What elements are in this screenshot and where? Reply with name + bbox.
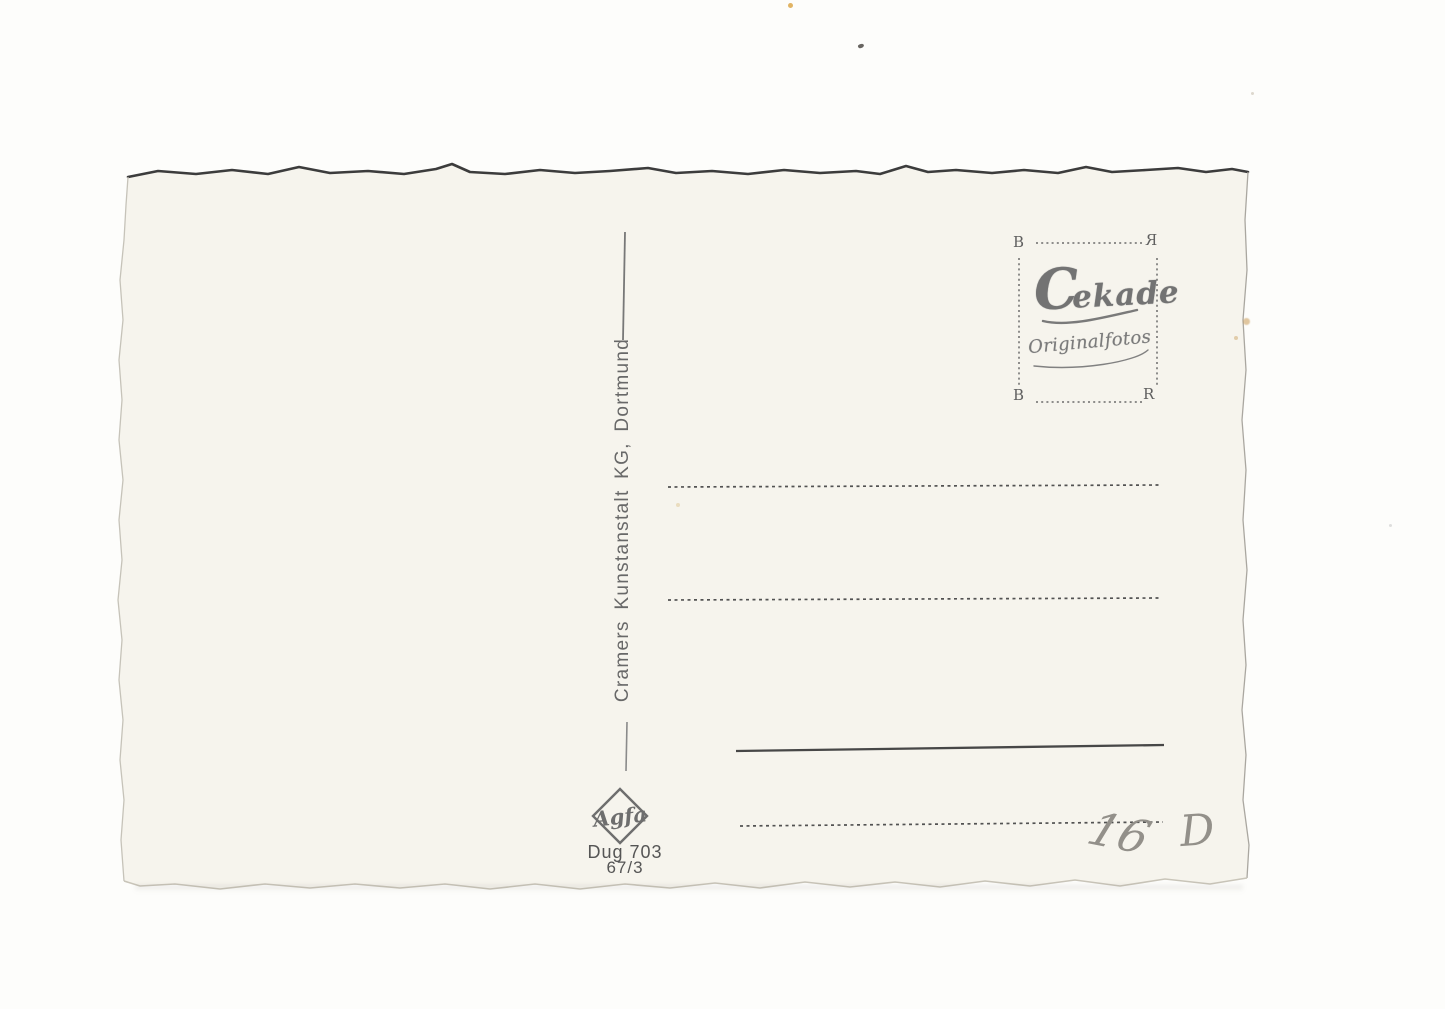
card-bottom-shadow [135, 885, 1243, 892]
divider-rule-bottom [626, 722, 627, 771]
print-code: Dug 703 67/3 [555, 844, 695, 876]
handwritten-letter: D [1178, 805, 1216, 857]
dust-speck [1251, 92, 1254, 95]
stamp-corner-letter-top-left: B [1013, 233, 1024, 251]
print-code-line-2: 67/3 [555, 860, 695, 876]
foxing-spot [1234, 336, 1238, 340]
cekade-rest: ekade [1071, 274, 1180, 316]
agfa-logo-text: Agfa [590, 801, 648, 832]
postcard-graphics [0, 0, 1445, 1009]
scanned-postcard-back: Cramers Kunstanstalt KG, Dortmund Agfa D… [0, 0, 1445, 1009]
stamp-corner-letter-bottom-left: B [1013, 386, 1024, 404]
dust-speck [1389, 524, 1392, 527]
cekade-brand-stamp: Cekade [1033, 258, 1181, 318]
dust-speck [788, 3, 793, 8]
publisher-imprint: Cramers Kunstanstalt KG, Dortmund [612, 338, 634, 702]
stamp-corner-letter-bottom-right: R [1143, 385, 1154, 403]
stamp-corner-letter-top-right: R [1146, 231, 1157, 249]
foxing-spot [676, 503, 680, 507]
agfa-diamond-logo: Agfa [590, 786, 650, 846]
foxing-spot [1243, 318, 1250, 325]
